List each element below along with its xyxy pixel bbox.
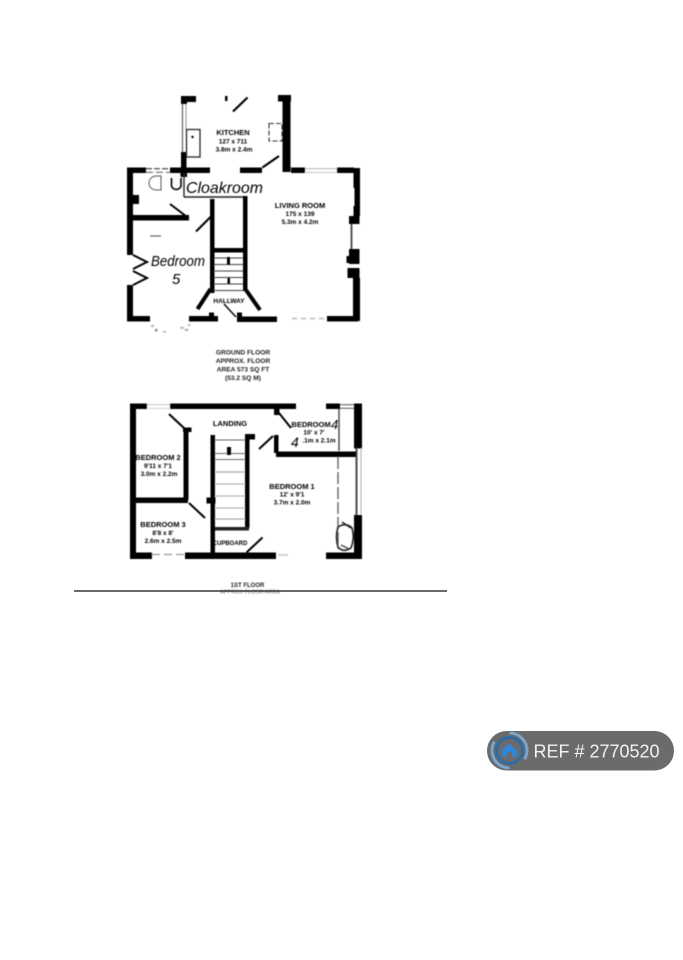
svg-text:3.0m x 2.2m: 3.0m x 2.2m [141,471,178,478]
svg-text:LIVING ROOM: LIVING ROOM [275,201,325,210]
svg-text:Bedroom: Bedroom [151,253,205,270]
svg-text:Cloakroom: Cloakroom [186,180,263,197]
svg-text:(53.2 SQ M): (53.2 SQ M) [225,375,261,382]
svg-text:KITCHEN: KITCHEN [216,128,249,137]
svg-text:1ST FLOOR: 1ST FLOOR [231,583,265,589]
svg-text:9'11 x 7'1: 9'11 x 7'1 [144,463,172,470]
svg-text:REF # 2770520: REF # 2770520 [533,742,659,762]
svg-text:BEDROOM 3: BEDROOM 3 [140,520,185,529]
svg-text:LANDING: LANDING [213,419,247,428]
svg-text:.1m x 2.1m: .1m x 2.1m [302,438,335,445]
svg-text:5.3m x 4.2m: 5.3m x 4.2m [282,219,319,226]
svg-text:4: 4 [291,434,299,450]
svg-text:10' x 7': 10' x 7' [303,430,325,437]
svg-text:BEDROOM 2: BEDROOM 2 [135,453,180,462]
svg-text:175 x 139: 175 x 139 [286,211,315,218]
svg-text:8'8 x 8': 8'8 x 8' [152,530,174,537]
svg-text:GROUND FLOOR: GROUND FLOOR [216,350,270,357]
svg-text:3.8m x 2.4m: 3.8m x 2.4m [216,147,253,154]
svg-text:CUPBOARD: CUPBOARD [213,541,248,547]
svg-text:APPROX. FLOOR: APPROX. FLOOR [216,358,271,365]
svg-text:HALLWAY: HALLWAY [213,298,245,305]
svg-text:5: 5 [172,271,181,288]
svg-text:127 x 711: 127 x 711 [219,139,248,146]
svg-text:BEDROOM: BEDROOM [291,420,330,429]
svg-text:3.7m x 2.0m: 3.7m x 2.0m [274,500,311,507]
svg-text:12' x 9'1: 12' x 9'1 [280,492,305,499]
svg-text:BEDROOM 1: BEDROOM 1 [269,482,314,491]
svg-text:4: 4 [331,417,338,432]
svg-text:AREA 573 SQ FT: AREA 573 SQ FT [217,367,270,374]
svg-text:2.6m x 2.5m: 2.6m x 2.5m [145,538,182,545]
